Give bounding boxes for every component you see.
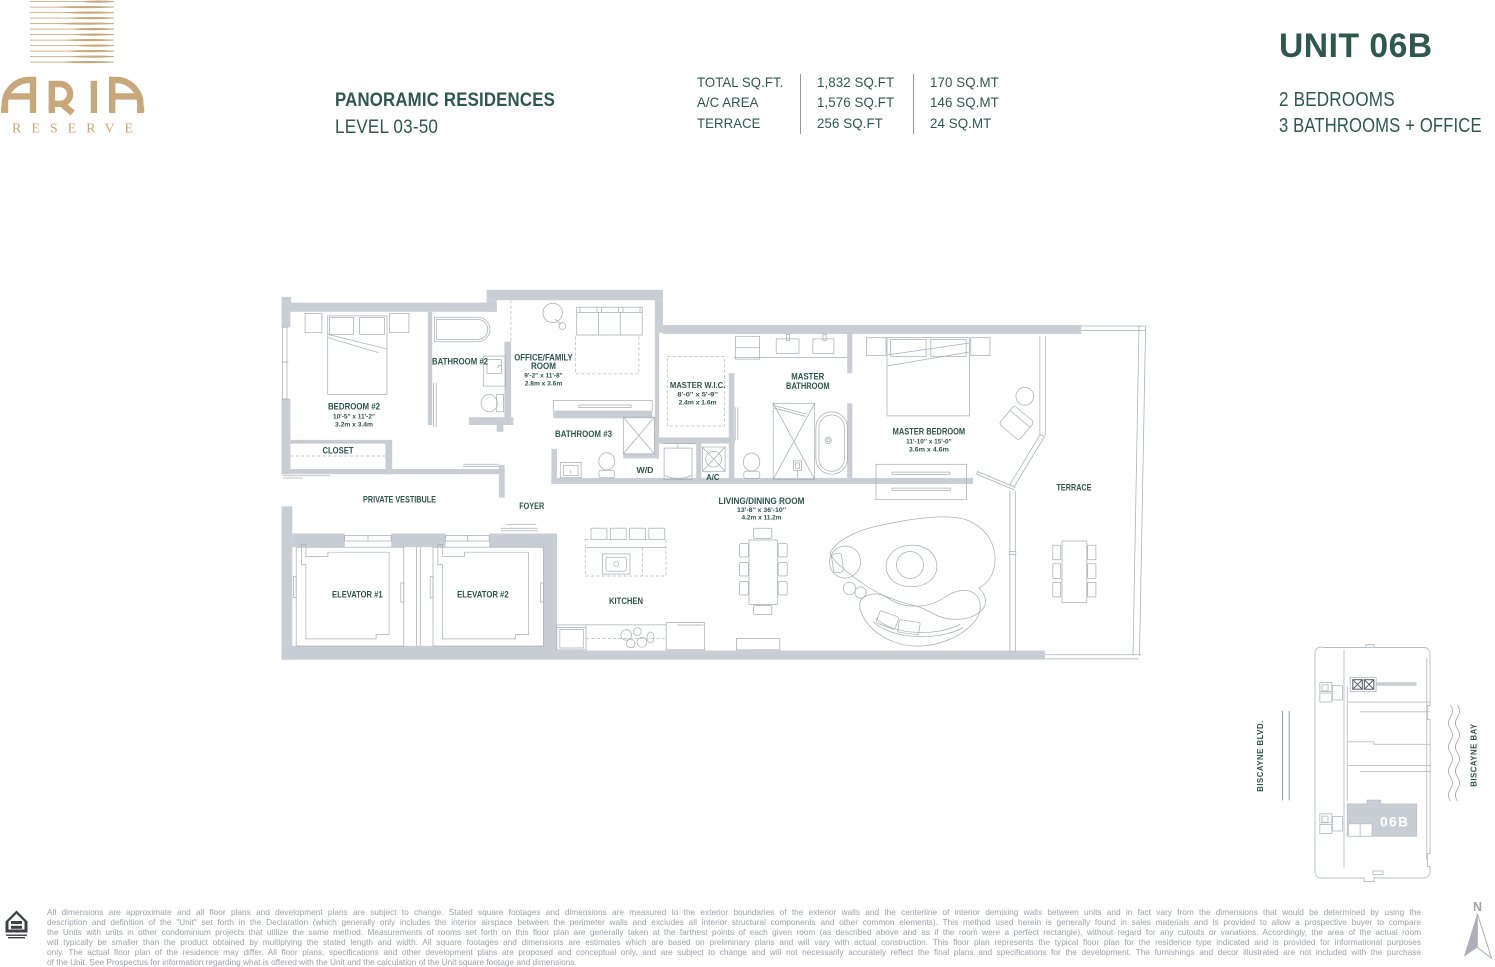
svg-text:TERRACE: TERRACE (1057, 482, 1092, 492)
svg-text:W/D: W/D (637, 465, 654, 475)
svg-text:LIVING/DINING ROOM: LIVING/DINING ROOM (719, 496, 805, 506)
svg-text:8'-0'' x 5'-9'': 8'-0'' x 5'-9'' (677, 392, 718, 399)
svg-text:BISCAYNE BAY: BISCAYNE BAY (1470, 723, 1479, 787)
svg-text:BATHROOM #3: BATHROOM #3 (555, 429, 612, 439)
svg-text:BATHROOM #2: BATHROOM #2 (432, 357, 488, 367)
svg-text:KITCHEN: KITCHEN (609, 596, 643, 606)
svg-text:RESERVE: RESERVE (12, 121, 143, 136)
svg-text:A/C: A/C (706, 472, 719, 482)
svg-text:BEDROOM #2: BEDROOM #2 (328, 402, 380, 412)
svg-text:CLOSET: CLOSET (323, 446, 354, 456)
svg-text:06B: 06B (1380, 815, 1409, 830)
svg-text:BISCAYNE BLVD.: BISCAYNE BLVD. (1256, 720, 1265, 792)
svg-text:MASTER W.I.C.: MASTER W.I.C. (670, 380, 726, 390)
svg-text:ROOM: ROOM (531, 361, 556, 371)
svg-text:10'-5" x 11'-2": 10'-5" x 11'-2" (333, 414, 375, 421)
svg-text:BATHROOM: BATHROOM (786, 381, 830, 391)
svg-text:ELEVATOR #2: ELEVATOR #2 (457, 590, 509, 600)
svg-text:13'-8'' x 36'-10'': 13'-8'' x 36'-10'' (737, 507, 787, 514)
svg-text:3.2m x 3.4m: 3.2m x 3.4m (335, 422, 373, 429)
svg-text:FOYER: FOYER (519, 501, 544, 511)
svg-text:N: N (1473, 900, 1482, 914)
svg-text:11'-10'' x 15'-0": 11'-10'' x 15'-0" (906, 438, 952, 445)
svg-text:MASTER BEDROOM: MASTER BEDROOM (893, 427, 966, 437)
svg-text:4.2m x 11.2m: 4.2m x 11.2m (742, 515, 782, 522)
svg-text:9'-2" x 11'-8": 9'-2" x 11'-8" (524, 373, 563, 380)
svg-text:2.8m x 3.6m: 2.8m x 3.6m (525, 381, 563, 388)
svg-text:ELEVATOR #1: ELEVATOR #1 (332, 590, 383, 600)
svg-text:3.6m x 4.6m: 3.6m x 4.6m (909, 446, 949, 453)
svg-text:2.4m x 1.6m: 2.4m x 1.6m (679, 400, 717, 407)
svg-text:PRIVATE VESTIBULE: PRIVATE VESTIBULE (363, 495, 436, 505)
